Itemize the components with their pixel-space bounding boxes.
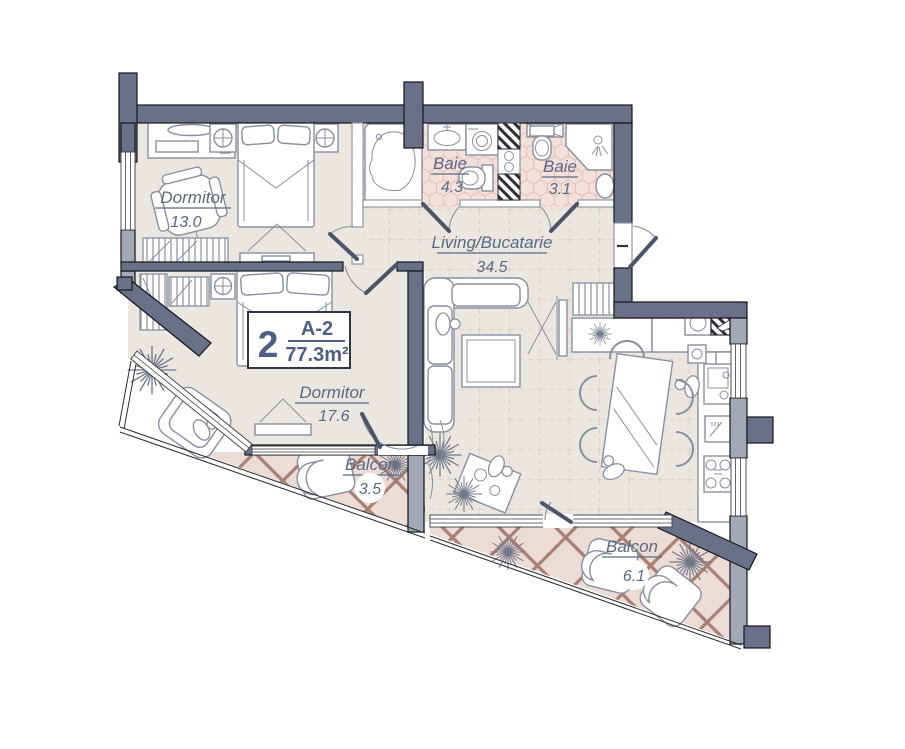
- room-area: 13.0: [170, 214, 201, 231]
- wall-left: [121, 230, 135, 264]
- keyboard-icon: [156, 141, 198, 152]
- room-name: Dormitor: [160, 188, 227, 207]
- balcony-door-opening: [378, 446, 428, 455]
- room-area: 6.1: [623, 568, 645, 585]
- unit-area: 77.3m²: [285, 344, 349, 366]
- wall-left: [121, 123, 135, 154]
- wall-top: [120, 105, 632, 123]
- wall-kitchen-top: [614, 302, 747, 318]
- wall-bath: [578, 200, 614, 207]
- room-name: Baie: [543, 157, 577, 176]
- wall-right: [730, 516, 747, 644]
- double-bed-icon: [238, 121, 314, 227]
- window: [731, 344, 746, 398]
- room-name: Balcon: [345, 455, 397, 474]
- window: [121, 152, 135, 230]
- wall-right: [730, 318, 747, 344]
- wardrobe-icon: [169, 277, 209, 306]
- room-name: Baie: [433, 154, 467, 173]
- wall-interior: [352, 123, 363, 227]
- tv-icon: [559, 300, 567, 356]
- shelf-icon: [573, 283, 618, 315]
- room-name: Living/Bucatarie: [432, 233, 553, 252]
- room-area: 3.5: [359, 481, 381, 498]
- unit-room-count: 2: [258, 324, 279, 365]
- room-area: 17.6: [318, 408, 349, 425]
- wall-bath: [363, 200, 422, 207]
- room-area: 34.5: [476, 259, 507, 276]
- window: [252, 446, 375, 455]
- washing-machine-icon: [466, 124, 498, 155]
- dishwasher-icon: [705, 416, 731, 442]
- toilet-icon: [530, 126, 554, 160]
- wall-right: [730, 398, 747, 458]
- door-entrance: [630, 226, 656, 267]
- floor-plan: Dormitor 13.0 Dormitor 17.6 Baie 4.3 Bai…: [0, 0, 905, 749]
- small-appliance-icon: [688, 345, 706, 363]
- wall-bedroom-separator: [397, 262, 423, 271]
- room-name: Dormitor: [299, 383, 366, 402]
- wall-bath: [460, 200, 540, 207]
- wall-column: [404, 82, 423, 148]
- floor-plan-page: Dormitor 13.0 Dormitor 17.6 Baie 4.3 Bai…: [0, 0, 905, 749]
- room-name: Balcon: [606, 537, 658, 556]
- duct-shaft: [498, 123, 520, 200]
- coffee-table-icon: [462, 335, 520, 387]
- tv-console-icon: [255, 424, 311, 435]
- unit-label-box: 2 A-2 77.3m²: [248, 312, 350, 368]
- monitor-icon: [168, 125, 214, 136]
- wall-bedroom-separator: [121, 262, 343, 271]
- wall-dormitor2-right: [408, 271, 423, 455]
- window: [731, 458, 746, 516]
- room-area: 4.3: [441, 179, 463, 196]
- room-area: 3.1: [549, 181, 571, 198]
- wall-pillar: [408, 455, 424, 532]
- unit-code: A-2: [301, 318, 333, 340]
- wall-right: [614, 123, 632, 223]
- wall-stub: [747, 417, 773, 443]
- wall-stub: [744, 626, 770, 648]
- stove4-icon: [704, 456, 732, 492]
- wall-corner: [117, 277, 132, 290]
